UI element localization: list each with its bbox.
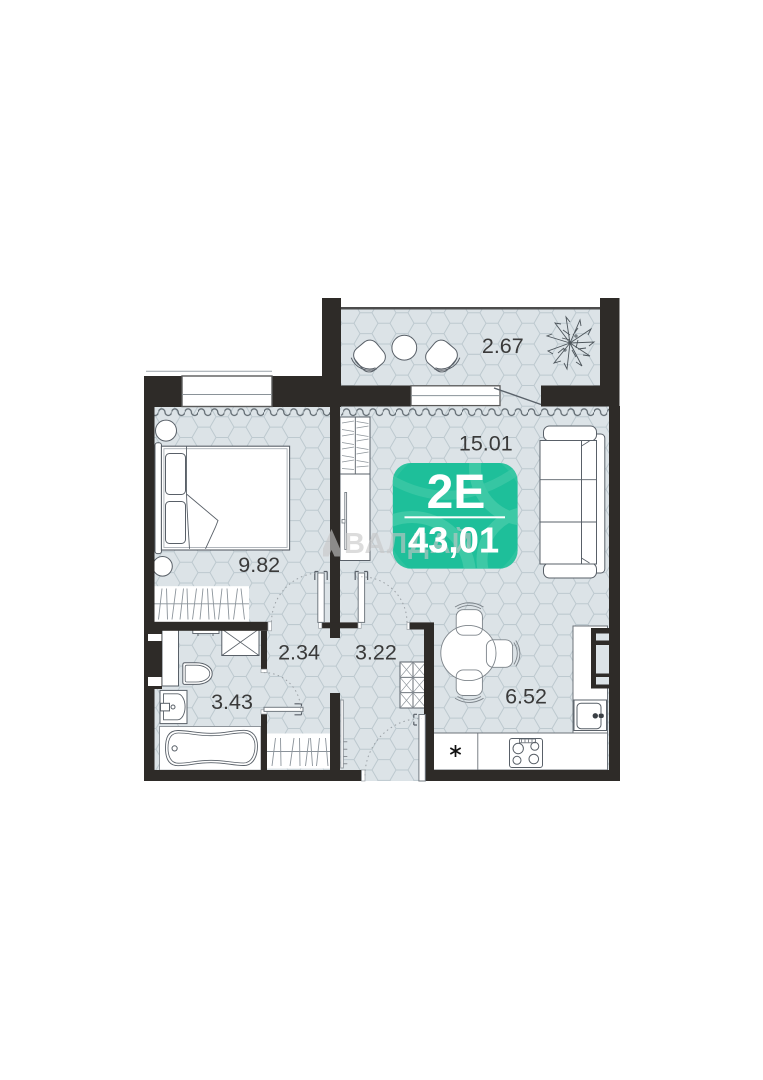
svg-text:43,01: 43,01 xyxy=(408,520,499,561)
svg-text:2.67: 2.67 xyxy=(482,334,524,358)
svg-text:2.34: 2.34 xyxy=(278,641,320,665)
svg-text:3.22: 3.22 xyxy=(355,641,397,665)
svg-text:3.43: 3.43 xyxy=(211,690,253,714)
svg-text:9.82: 9.82 xyxy=(238,553,280,577)
svg-text:2E: 2E xyxy=(427,466,486,519)
svg-text:15.01: 15.01 xyxy=(459,431,513,455)
svg-text:6.52: 6.52 xyxy=(505,684,547,708)
